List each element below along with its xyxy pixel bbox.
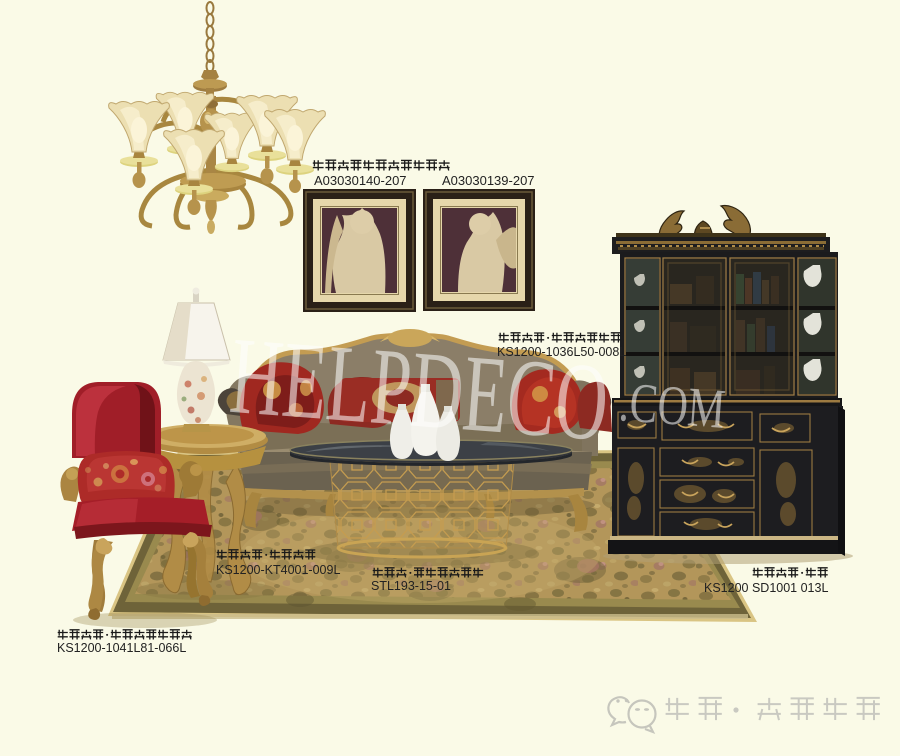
svg-text:KS1200-1041L81-066L: KS1200-1041L81-066L xyxy=(57,641,186,655)
svg-text:KS1200-KT4001-009L: KS1200-KT4001-009L xyxy=(216,563,340,577)
svg-text:KS1200-1036L50-008L: KS1200-1036L50-008L xyxy=(497,345,626,359)
svg-text:A03030139-207: A03030139-207 xyxy=(442,173,535,188)
svg-text:KS1200 SD1001 013L: KS1200 SD1001 013L xyxy=(704,581,828,595)
svg-text:A03030140-207: A03030140-207 xyxy=(314,173,407,188)
svg-text:.COM: .COM xyxy=(617,371,727,441)
svg-text:STL193-15-01: STL193-15-01 xyxy=(371,579,451,593)
